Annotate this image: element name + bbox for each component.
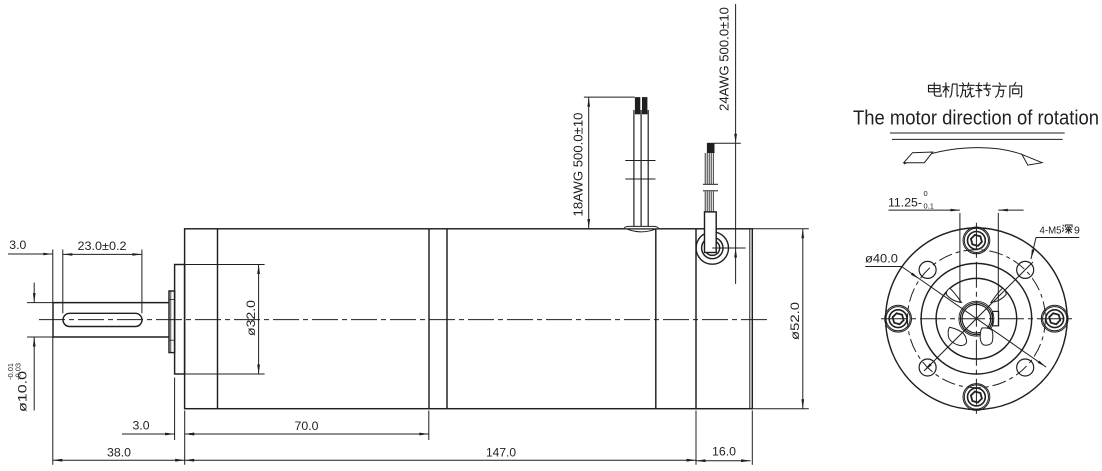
svg-text:ø40.0: ø40.0 <box>865 254 898 266</box>
svg-text:24AWG 500.0±10: 24AWG 500.0±10 <box>717 7 732 111</box>
svg-text:9: 9 <box>1074 225 1080 237</box>
svg-text:23.0±0.2: 23.0±0.2 <box>78 241 127 253</box>
svg-text:38.0: 38.0 <box>107 447 131 459</box>
svg-text:3.0: 3.0 <box>133 421 150 433</box>
svg-text:The motor direction of rotatio: The motor direction of rotation <box>853 107 1099 130</box>
svg-text:16.0: 16.0 <box>712 446 736 458</box>
svg-text:0.1: 0.1 <box>924 202 934 211</box>
svg-text:147.0: 147.0 <box>486 447 516 459</box>
svg-text:ø52.0: ø52.0 <box>790 302 802 340</box>
svg-text:0: 0 <box>924 189 928 198</box>
svg-text:18AWG 500.0±10: 18AWG 500.0±10 <box>571 113 586 217</box>
svg-text:4-M5: 4-M5 <box>1040 225 1062 237</box>
svg-text:3.0: 3.0 <box>9 240 26 252</box>
svg-text:ø32.0: ø32.0 <box>246 300 258 336</box>
svg-text:70.0: 70.0 <box>295 421 319 433</box>
svg-text:11.25-: 11.25- <box>888 198 922 210</box>
svg-text:-0.03: -0.03 <box>14 363 23 380</box>
